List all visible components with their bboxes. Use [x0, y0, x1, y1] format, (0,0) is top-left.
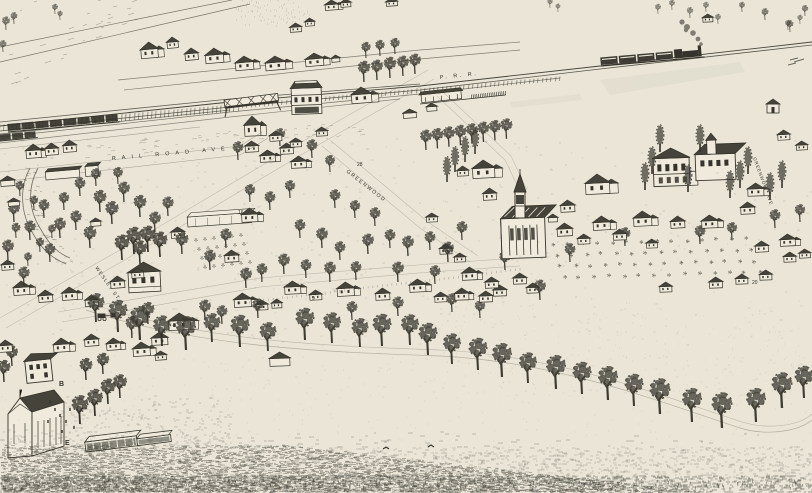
svg-text:16: 16: [238, 210, 244, 216]
svg-text:28: 28: [357, 162, 363, 168]
svg-text:9: 9: [312, 296, 315, 302]
svg-text:E: E: [65, 440, 70, 447]
svg-text:20: 20: [752, 280, 758, 286]
svg-text:B: B: [59, 381, 64, 388]
